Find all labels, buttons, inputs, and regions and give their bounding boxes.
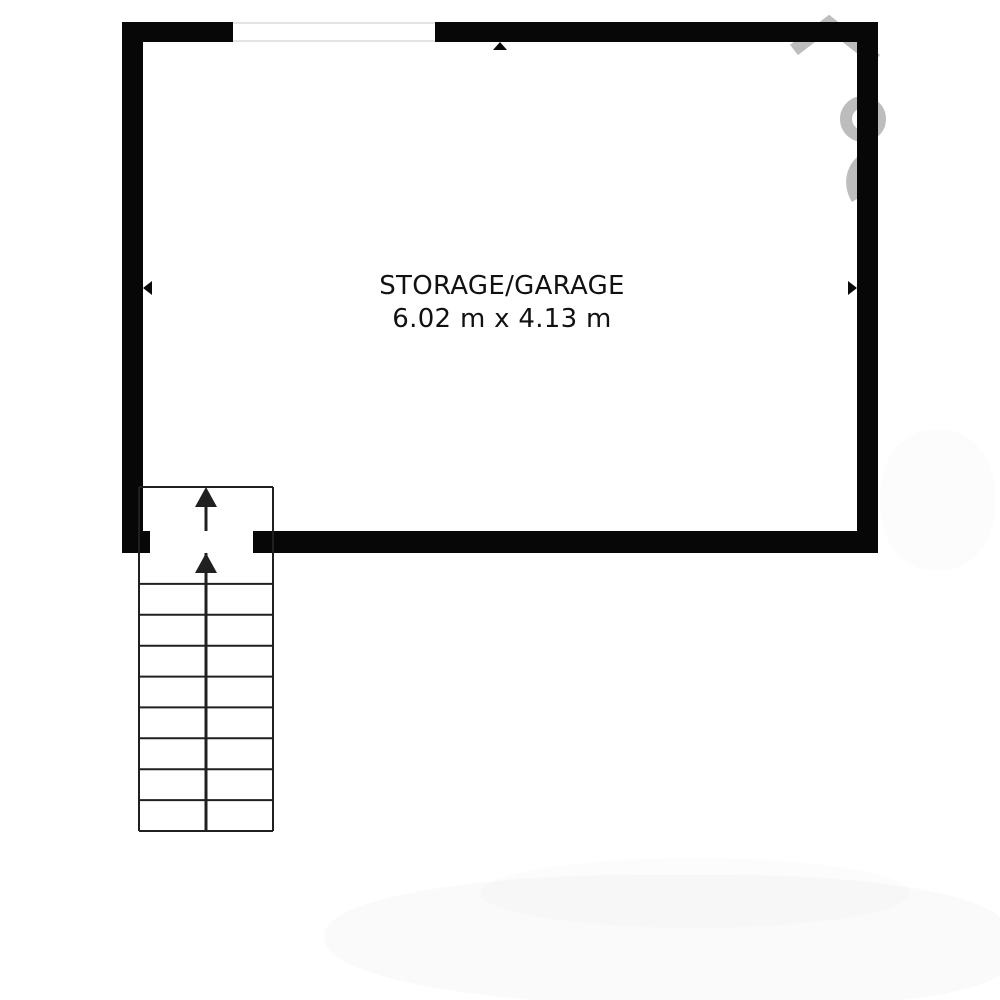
room-dimensions: 6.02 m x 4.13 m bbox=[140, 303, 864, 336]
stair-up-arrow-upper-icon bbox=[195, 487, 217, 507]
stair-up-arrow-lower-icon bbox=[195, 553, 217, 573]
right-arrow-marker-icon bbox=[848, 281, 857, 295]
left-arrow-marker-icon bbox=[143, 281, 152, 295]
faint-bottom-blob-2 bbox=[480, 858, 910, 928]
room-name: STORAGE/GARAGE bbox=[140, 270, 864, 303]
window-opening bbox=[233, 22, 435, 42]
staircase bbox=[129, 477, 289, 839]
room-label-block: STORAGE/GARAGE 6.02 m x 4.13 m bbox=[140, 270, 864, 336]
up-arrow-marker-icon bbox=[493, 42, 507, 50]
faint-right-blob bbox=[880, 430, 995, 570]
floorplan-canvas: STORAGE/GARAGE 6.02 m x 4.13 m bbox=[0, 0, 1000, 1000]
